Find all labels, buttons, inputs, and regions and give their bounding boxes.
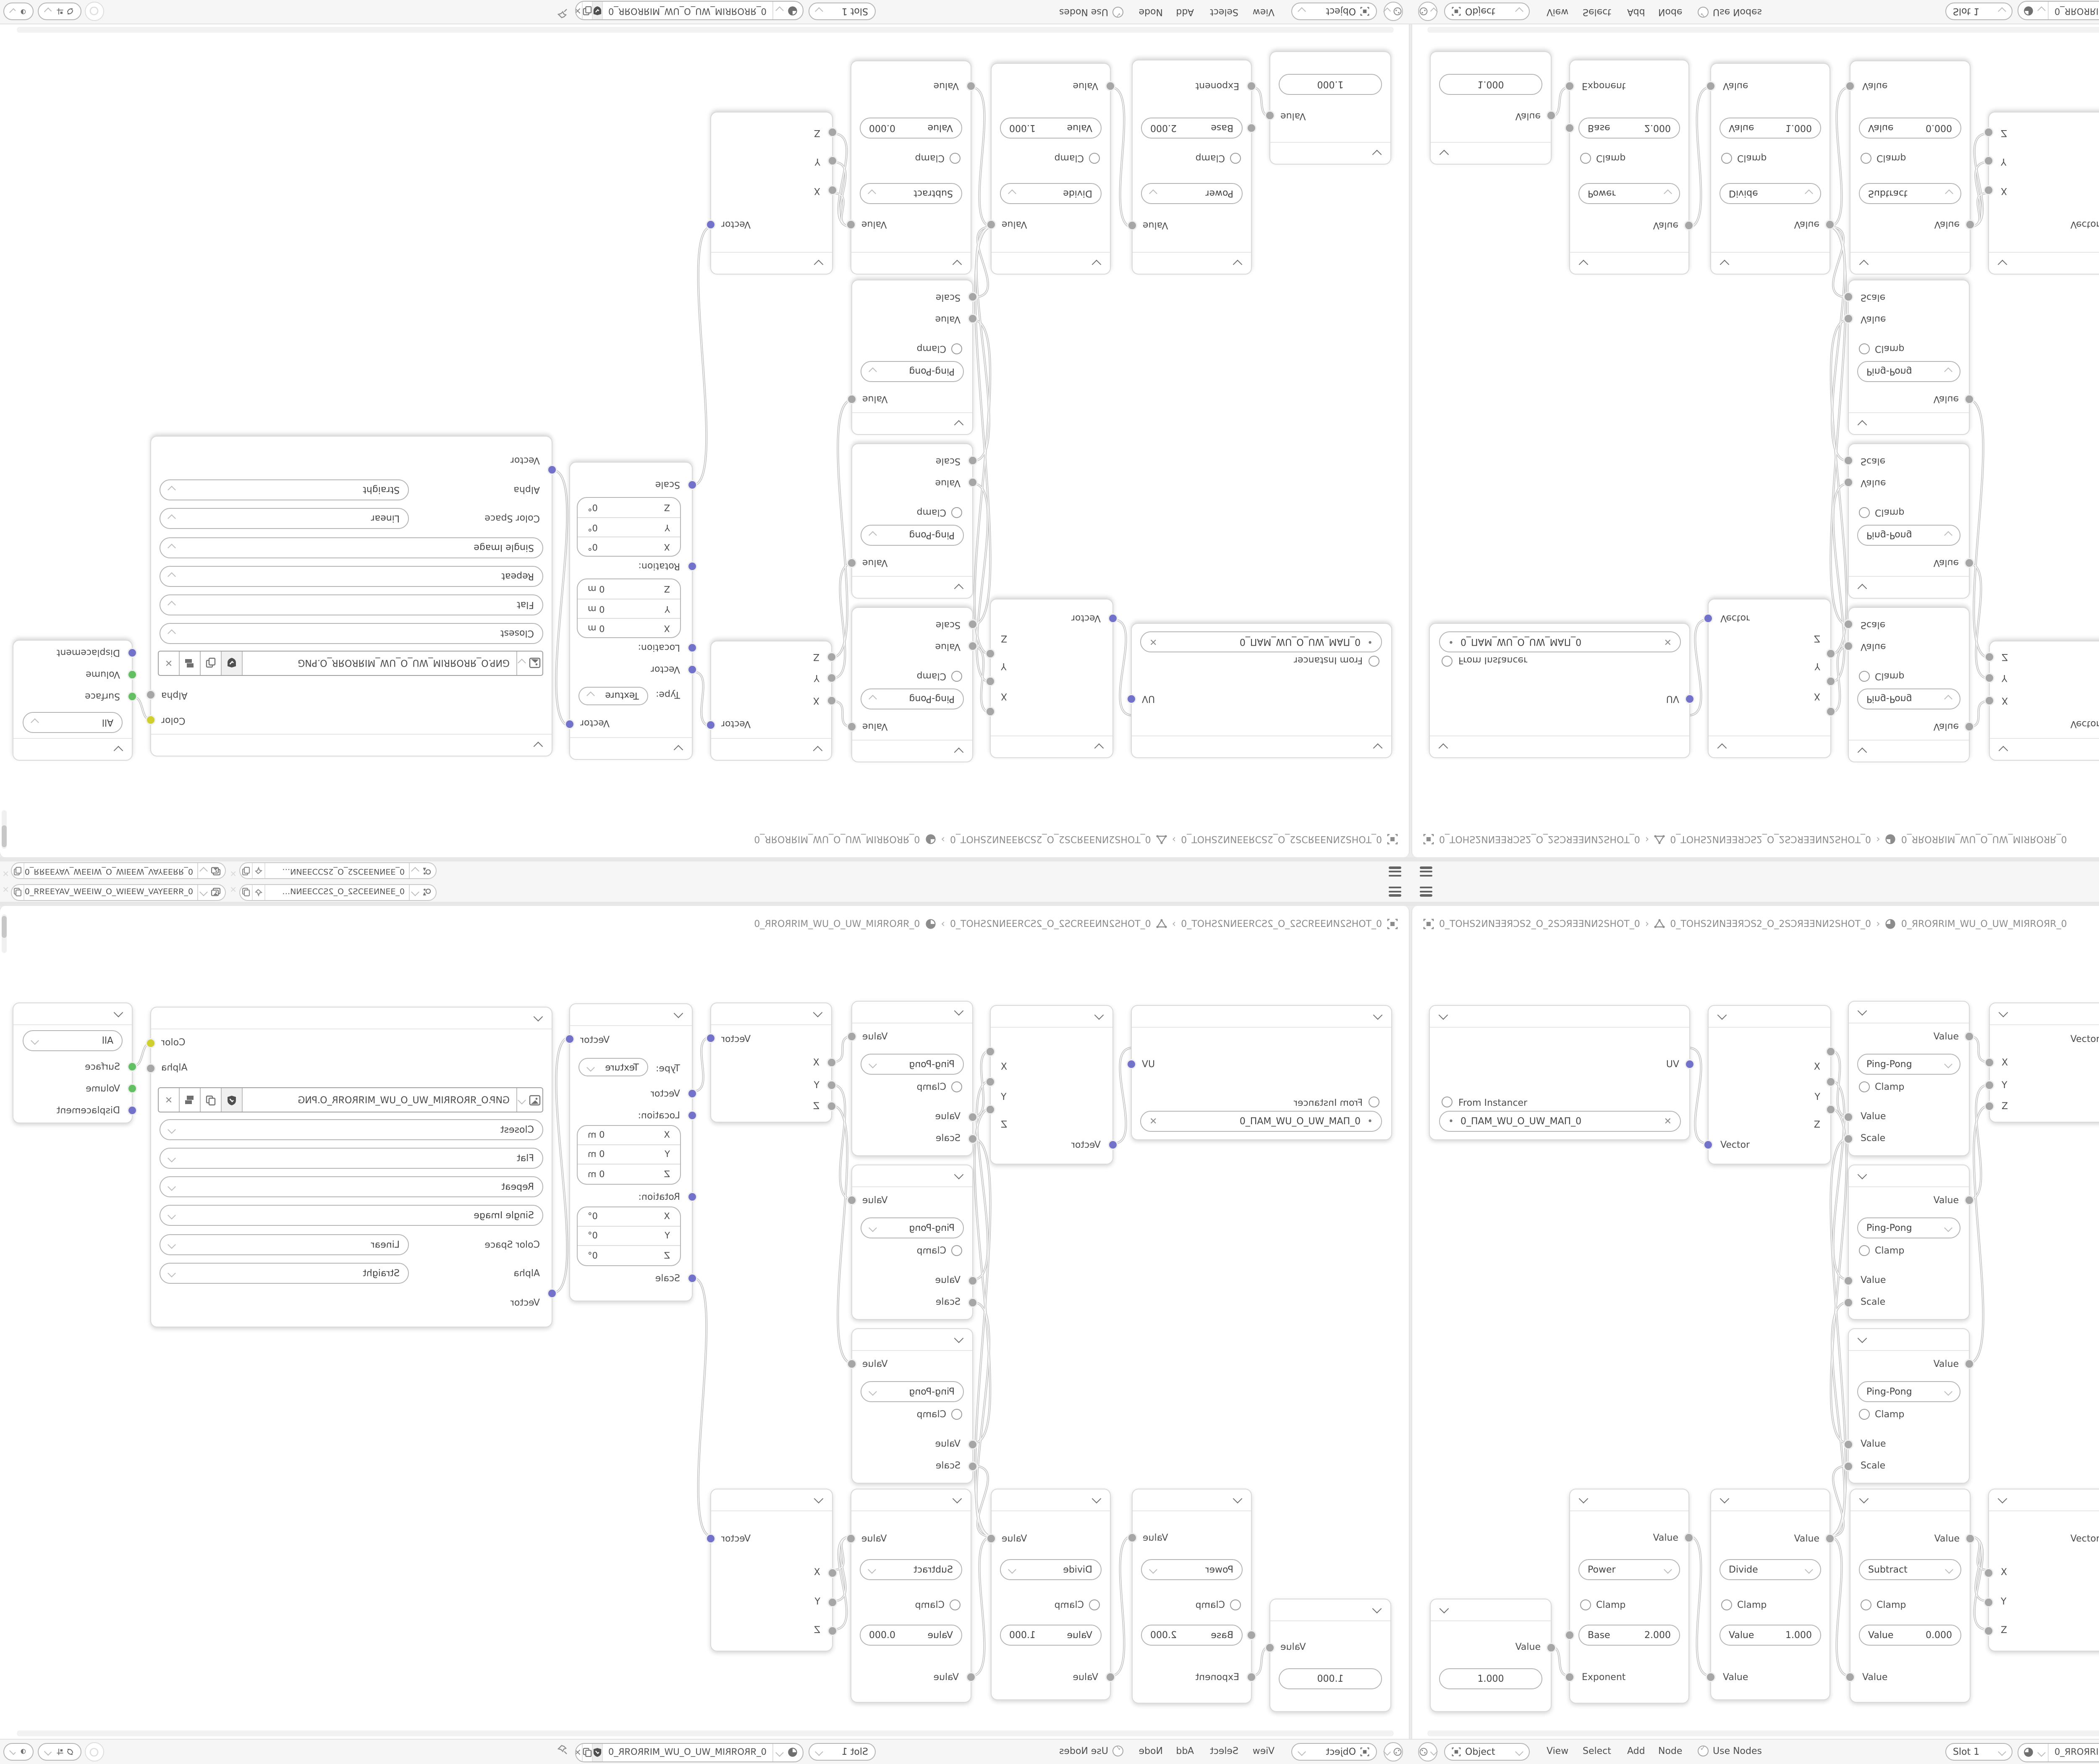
socket-z-input[interactable] [828,653,835,661]
collapse-chevron-icon[interactable] [1579,260,1589,270]
node-header[interactable] [851,1489,971,1511]
node-header[interactable] [1849,1002,1969,1023]
operation-dropdown[interactable]: Ping-Pong [861,1054,964,1075]
collapse-chevron-icon[interactable] [114,746,123,756]
menu-node[interactable]: Node [1658,7,1682,18]
node-math-power[interactable]: Value Power Clamp Base2.000 Exponent [1132,60,1252,275]
clamp-checkbox[interactable] [1859,1081,1870,1092]
collapse-chevron-icon[interactable] [1858,1170,1867,1180]
node-header[interactable] [1989,252,2099,274]
value-field[interactable]: 1.000 [1279,1668,1382,1689]
view-layer-icon[interactable] [197,864,225,879]
socket-base-input[interactable] [1248,124,1255,132]
socket-y-input[interactable] [1986,1081,1993,1089]
node-math-pingpong-z[interactable]: Value Ping-Pong Clamp Value Scale [851,280,973,435]
node-editor-canvas[interactable]: 0_TOHS2ИNƎƎЯƆS2_O_2SƆЯƎƎNИ2SHOT_0 › 0_TO… [0,24,1410,857]
socket-x-output[interactable] [987,1048,994,1055]
node-editor-canvas[interactable]: 0_TOHS2ИNƎƎЯƆS2_O_2SƆЯƎƎNИ2SHOT_0 › 0_TO… [1411,906,2099,1739]
socket-vector-output[interactable] [707,1034,714,1042]
operation-dropdown[interactable]: Ping-Pong [1857,1381,1960,1402]
node-combine-xyz-scale[interactable]: Vector X Y Z [710,1489,833,1651]
collapse-chevron-icon[interactable] [814,260,824,270]
socket-value-output[interactable] [1266,1644,1274,1651]
socket-scale-input[interactable] [688,481,696,489]
node-header[interactable] [852,1165,972,1187]
collapse-chevron-icon[interactable] [1859,260,1869,270]
pin-icon[interactable] [253,885,265,900]
socket-z-output[interactable] [987,1106,994,1113]
node-header[interactable] [1431,1599,1551,1621]
operation-dropdown[interactable]: Divide [1720,1559,1821,1580]
clamp-checkbox[interactable] [1859,343,1870,354]
node-header[interactable] [1270,142,1390,164]
socket-x-input[interactable] [828,697,835,704]
use-nodes-checkbox[interactable]: Use Nodes [1698,1746,1762,1756]
socket-uv-output[interactable] [1686,1060,1693,1068]
socket-scale-input[interactable] [1845,293,1852,301]
uv-map-name[interactable]: 0_ПAM_WU_O_UW_MAП_0 [1460,1116,1664,1127]
node-math-divide[interactable]: Value Divide Clamp Value1.000 Value [991,1489,1111,1700]
operation-dropdown[interactable]: Power [1578,183,1680,204]
overlay-toggle[interactable] [3,3,34,21]
slot-dropdown[interactable]: Slot 1 [1945,1743,2013,1760]
node-combine-xyz-scale[interactable]: Vector X Y Z [710,112,833,275]
node-header[interactable] [13,738,132,760]
socket-value-output[interactable] [848,1033,856,1040]
view-layer-selector[interactable]: 0_ЯЯƎƎYAV_WƎƎIW_O_WIƎƎW_VAYƎƎЯЯ_0 [11,884,226,900]
node-value[interactable]: Value 1.000 [1269,51,1391,165]
node-math-pingpong-y[interactable]: Value Ping-Pong Clamp Value Scale [851,1165,973,1320]
socket-z-input[interactable] [829,128,836,136]
axis-field[interactable]: Z0° [578,1246,680,1265]
node-header[interactable] [1849,1329,1969,1351]
clamp-checkbox[interactable] [1089,153,1100,164]
socket-value-input[interactable] [1846,1673,1854,1681]
socket-value-output[interactable] [1966,395,1973,403]
collapse-chevron-icon[interactable] [954,1006,964,1016]
clamp-checkbox[interactable] [950,1599,961,1610]
node-header[interactable] [1430,1006,1689,1028]
shader-type-dropdown[interactable]: Object [1291,1743,1377,1760]
operation-dropdown[interactable]: Ping-Pong [861,361,964,382]
collapse-chevron-icon[interactable] [1998,1494,2007,1504]
node-header[interactable] [1133,1489,1251,1511]
hamburger-menu-icon[interactable] [1420,866,1432,877]
node-header[interactable] [711,1489,832,1511]
socket-rotation-input[interactable] [688,1193,696,1201]
socket-scale-input[interactable] [969,1463,976,1470]
scene-icon[interactable] [409,885,436,900]
socket-location-input[interactable] [688,644,696,652]
render-preview-button[interactable] [85,2,104,21]
copy-icon[interactable] [582,1743,592,1761]
operation-dropdown[interactable]: Ping-Pong [861,525,964,546]
socket-value-input[interactable] [969,1277,976,1285]
socket-z-input[interactable] [1986,653,1993,661]
collapse-chevron-icon[interactable] [1094,1010,1104,1020]
base-field[interactable]: Base2.000 [1578,1625,1680,1646]
clear-icon[interactable]: ✕ [1149,636,1157,647]
socket-vector-output[interactable] [707,221,714,228]
socket-y-input[interactable] [829,157,836,165]
value-field[interactable]: Value1.000 [1720,118,1821,139]
scene-name[interactable]: 0_ƎƎИNƎƎƆS2_O_2SƆƆƎƎNИ… [265,866,409,876]
socket-location-input[interactable] [688,1112,696,1119]
base-field[interactable]: Base2.000 [1578,118,1680,139]
node-mapping[interactable]: Vector Type: Texture Vector Location: X0… [569,462,693,760]
menu-select[interactable]: Select [1210,7,1238,18]
checkbox-check-icon[interactable] [1112,7,1123,18]
output-target-dropdown[interactable]: All [23,1030,123,1051]
socket-z-input[interactable] [828,1102,835,1110]
collapse-chevron-icon[interactable] [954,1170,964,1180]
socket-y-output[interactable] [987,1078,994,1086]
unpack-icon[interactable] [180,1088,201,1112]
material-name[interactable]: 0_ЯROЯRIM_WU_O_UW_MIЯROЯR_0 [2049,1747,2099,1757]
view-layer-icon[interactable] [197,885,225,900]
node-header[interactable] [1132,735,1391,757]
socket-y-output[interactable] [1827,678,1835,685]
socket-value-output[interactable] [1966,1196,1973,1204]
source-dropdown[interactable]: Single Image [160,537,543,558]
node-header[interactable] [1850,1489,1970,1511]
socket-scale-input[interactable] [969,620,976,628]
collapse-chevron-icon[interactable] [1720,1494,1730,1504]
socket-value-input[interactable] [969,315,976,322]
clear-icon[interactable]: ✕ [1664,636,1672,647]
node-header[interactable] [852,576,972,598]
node-header[interactable] [1709,735,1830,757]
menu-node[interactable]: Node [1658,1746,1682,1756]
menu-node[interactable]: Node [1139,1746,1163,1756]
socket-x-input[interactable] [829,1569,836,1577]
menu-node[interactable]: Node [1139,7,1163,18]
node-header[interactable] [852,1002,972,1023]
socket-value-output[interactable] [848,1196,856,1204]
clamp-checkbox[interactable] [1859,1409,1870,1420]
socket-value-output[interactable] [848,395,856,403]
horizontal-scrollbar[interactable] [17,27,1394,33]
operation-dropdown[interactable]: Ping-Pong [861,1381,964,1402]
node-combine-xyz[interactable]: Vector X Y Z [710,641,832,761]
material-name[interactable]: 0_ЯROЯRIM_WU_O_UW_MIЯROЯR_0 [2049,6,2099,16]
socket-scale-input[interactable] [969,1299,976,1306]
socket-base-input[interactable] [1566,1631,1573,1639]
collapse-chevron-icon[interactable] [954,420,964,430]
fake-user-shield-icon[interactable] [592,1743,602,1761]
value-field[interactable]: 1.000 [1279,74,1382,95]
operation-dropdown[interactable]: Ping-Pong [1857,525,1960,546]
node-header[interactable] [570,1004,692,1026]
socket-volume-input[interactable] [128,1085,136,1092]
unlink-icon[interactable]: ✕ [575,2,582,20]
node-math-pingpong-z[interactable]: Value Ping-Pong Clamp Value Scale [851,1328,973,1484]
socket-volume-input[interactable] [128,671,136,678]
socket-value-output[interactable] [1966,559,1973,567]
socket-value-output[interactable] [1547,1644,1555,1651]
operation-dropdown[interactable]: Power [1141,1559,1243,1580]
operation-dropdown[interactable]: Ping-Pong [861,1217,964,1238]
value-field[interactable]: Value0.000 [860,1625,962,1646]
socket-value-input[interactable] [967,1673,975,1681]
socket-vector-input[interactable] [1704,1141,1712,1149]
node-header[interactable] [1849,740,1969,762]
clamp-checkbox[interactable] [951,507,962,518]
socket-z-output[interactable] [1827,1106,1835,1113]
socket-value-output[interactable] [848,559,856,567]
socket-value-output[interactable] [1128,1534,1136,1542]
collapse-chevron-icon[interactable] [1439,1010,1448,1020]
clamp-checkbox[interactable] [1580,1599,1591,1610]
axis-field[interactable]: Y0° [578,1227,680,1246]
base-field[interactable]: Base2.000 [1141,118,1243,139]
pin-icon[interactable] [557,8,568,19]
socket-y-output[interactable] [987,678,994,685]
socket-value-output[interactable] [987,221,995,228]
clamp-checkbox[interactable] [951,671,962,682]
base-field[interactable]: Base2.000 [1141,1625,1243,1646]
socket-value-input[interactable] [1845,1277,1852,1285]
socket-vector-input[interactable] [1704,615,1712,622]
collapse-chevron-icon[interactable] [1372,150,1382,160]
node-header[interactable] [151,1008,552,1029]
menu-select[interactable]: Select [1210,1746,1238,1756]
socket-displacement-input[interactable] [128,649,136,657]
node-combine-xyz[interactable]: Vector X Y Z [1989,1002,2099,1123]
socket-y-input[interactable] [829,1599,836,1606]
socket-value-input[interactable] [1845,479,1852,486]
clamp-checkbox[interactable] [1721,153,1732,164]
material-icon[interactable] [772,1743,803,1761]
shader-type-dropdown[interactable]: Object [1444,3,1530,21]
axis-field[interactable]: Y0 m [578,1145,680,1165]
image-datablock-field[interactable]: GИP.O_ЯROЯRIM_WU_O_UW_MIЯROЯR_O.PNG ✕ [158,651,543,676]
socket-y-input[interactable] [1985,1599,1992,1606]
material-selector[interactable]: 0_ЯROЯRIM_WU_O_UW_MIЯROЯR_0 ✕ [2018,1743,2099,1762]
socket-z-input[interactable] [1985,128,1992,136]
node-editor-canvas[interactable]: 0_TOHS2ИNƎƎЯƆS2_O_2SƆЯƎƎNИ2SHOT_0 › 0_TO… [1411,24,2099,857]
socket-displacement-input[interactable] [128,1107,136,1114]
horizontal-scrollbar[interactable] [1427,27,2099,33]
uv-map-name-field[interactable]: • 0_ПAM_WU_O_UW_MAП_0 ✕ [1140,631,1382,652]
uv-map-name-field[interactable]: • 0_ПAM_WU_O_UW_MAП_0 ✕ [1140,1111,1382,1132]
image-filename[interactable]: GИP.O_ЯROЯRIM_WU_O_UW_MIЯROЯR_O.PNG [243,1088,516,1112]
unlink-icon[interactable]: ✕ [575,1743,582,1761]
socket-value-input[interactable] [1707,1673,1714,1681]
node-combine-xyz[interactable]: Vector X Y Z [710,1002,832,1123]
socket-alpha-output[interactable] [147,1065,154,1072]
operation-dropdown[interactable]: Subtract [860,183,962,204]
node-math-power[interactable]: Value Power Clamp Base2.000 Exponent [1132,1489,1252,1704]
clamp-checkbox[interactable] [1859,1245,1870,1256]
value-field[interactable]: Value0.000 [860,118,962,139]
collapse-chevron-icon[interactable] [1439,1604,1449,1614]
image-filename[interactable]: GИP.O_ЯROЯRIM_WU_O_UW_MIЯROЯR_O.PNG [243,652,516,675]
collapse-chevron-icon[interactable] [1720,260,1730,270]
socket-value-input[interactable] [1107,82,1114,90]
menu-view[interactable]: View [1547,7,1568,18]
node-header[interactable] [570,737,692,759]
socket-surface-input[interactable] [128,1063,136,1070]
socket-value-output[interactable] [1128,222,1136,229]
copy-icon[interactable] [201,652,222,675]
fake-user-shield-icon[interactable] [592,2,602,20]
menu-add[interactable]: Add [1627,7,1645,18]
new-copy-icon[interactable] [12,885,24,900]
new-copy-icon[interactable] [240,885,253,900]
output-target-dropdown[interactable]: All [23,712,123,733]
socket-value-output[interactable] [1547,112,1555,119]
node-math-pingpong-x[interactable]: Value Ping-Pong Clamp Value Scale [851,607,973,762]
from-instancer-checkbox[interactable] [1369,656,1379,667]
socket-x-input[interactable] [1985,1569,1992,1577]
socket-value-output[interactable] [1266,112,1274,119]
clamp-checkbox[interactable] [951,343,962,354]
socket-value-output[interactable] [847,221,855,228]
socket-surface-input[interactable] [128,693,136,700]
node-header[interactable] [1133,252,1251,274]
node-header[interactable] [852,1329,972,1351]
clamp-checkbox[interactable] [950,153,961,164]
socket-x-input[interactable] [1985,186,1992,194]
collapse-chevron-icon[interactable] [954,584,964,594]
socket-x-output[interactable] [1827,1048,1835,1055]
render-preview-button[interactable] [85,1742,104,1761]
collapse-chevron-icon[interactable] [1373,743,1383,753]
material-selector[interactable]: 0_ЯROЯRIM_WU_O_UW_MIЯROЯR_0 ✕ [575,1,803,21]
socket-vector-output[interactable] [707,721,714,729]
material-name[interactable]: 0_ЯROЯRIM_WU_O_UW_MIЯROЯR_0 [602,1747,772,1757]
hamburger-menu-icon[interactable] [1389,866,1401,877]
extension-dropdown[interactable]: Repeat [160,1176,543,1197]
material-icon[interactable] [2018,1743,2049,1761]
alpha-mode-dropdown[interactable]: Straight [160,479,409,500]
value-field[interactable]: 1.000 [1439,74,1542,95]
socket-y-input[interactable] [1985,157,1992,165]
socket-y-input[interactable] [1986,674,1993,682]
color-space-dropdown[interactable]: Linear [160,508,409,529]
socket-vector-input[interactable] [1109,615,1117,622]
socket-value-output[interactable] [1966,1535,1974,1542]
node-material-output[interactable]: All Surface Volume Displacement [13,1002,133,1123]
collapse-chevron-icon[interactable] [114,1008,123,1018]
use-nodes-checkbox[interactable]: Use Nodes [1059,1746,1123,1756]
interpolation-dropdown[interactable]: Closest [160,623,543,644]
menu-add[interactable]: Add [1176,7,1194,18]
node-combine-xyz[interactable]: Vector X Y Z [1989,641,2099,761]
menu-select[interactable]: Select [1583,7,1611,18]
overlay-toggle[interactable] [3,1743,34,1760]
clear-icon[interactable]: ✕ [159,652,180,675]
node-header[interactable] [1709,1006,1830,1028]
rotation-xyz-fields[interactable]: X0° Y0° Z0° [577,497,681,557]
socket-vector-input[interactable] [548,1290,556,1297]
socket-value-input[interactable] [1107,1673,1114,1681]
operation-dropdown[interactable]: Ping-Pong [1857,688,1960,709]
socket-x-output[interactable] [1827,708,1835,715]
socket-vector-output[interactable] [566,1035,573,1043]
view-layer-selector[interactable]: 0_ЯЯƎƎYAV_WƎƎIW_O_WIƎƎW_VAYƎƎЯЯ_0 [11,863,226,879]
collapse-chevron-icon[interactable] [1858,584,1867,594]
socket-value-output[interactable] [1826,221,1834,228]
alpha-mode-dropdown[interactable]: Straight [160,1263,409,1284]
socket-vector-input[interactable] [688,666,696,673]
axis-field[interactable]: X0° [578,537,680,556]
socket-vector-output[interactable] [566,720,573,728]
checkbox-check-icon[interactable] [1112,1746,1123,1756]
node-header[interactable] [1849,1165,1969,1187]
node-header[interactable] [851,252,971,274]
socket-value-input[interactable] [1707,82,1714,90]
socket-value-input[interactable] [969,1441,976,1448]
node-header[interactable] [1849,412,1969,434]
material-selector[interactable]: 0_ЯROЯRIM_WU_O_UW_MIЯROЯR_0 ✕ [575,1743,803,1762]
new-copy-icon[interactable] [12,864,24,879]
menu-add[interactable]: Add [1627,1746,1645,1756]
socket-uv-output[interactable] [1686,695,1693,703]
node-value[interactable]: Value 1.000 [1430,51,1552,165]
socket-x-input[interactable] [829,186,836,194]
location-xyz-fields[interactable]: X0 m Y0 m Z0 m [577,578,681,638]
node-header[interactable] [991,1006,1112,1028]
clamp-checkbox[interactable] [951,1409,962,1420]
from-instancer-checkbox[interactable] [1369,1097,1379,1107]
socket-exponent-input[interactable] [1566,1673,1573,1681]
socket-value-output[interactable] [1826,1535,1834,1542]
uv-map-name-field[interactable]: • 0_ПAM_WU_O_UW_MAП_0 ✕ [1439,1111,1681,1132]
clamp-checkbox[interactable] [1580,153,1591,164]
clamp-checkbox[interactable] [1861,1599,1871,1610]
fake-user-shield-icon[interactable] [222,652,243,675]
collapse-chevron-icon[interactable] [1858,1006,1867,1016]
socket-vector-input[interactable] [548,466,556,474]
view-layer-unlink-icon[interactable]: ✕ [2,886,9,895]
snapping-controls[interactable] [38,3,81,21]
scene-unlink-icon[interactable]: ✕ [230,886,237,895]
socket-scale-input[interactable] [969,1135,976,1143]
socket-value-input[interactable] [1845,642,1852,650]
shader-type-dropdown[interactable]: Object [1444,1743,1530,1760]
socket-scale-input[interactable] [969,293,976,301]
collapse-chevron-icon[interactable] [813,746,823,756]
node-math-divide[interactable]: Value Divide Clamp Value1.000 Value [1710,1489,1830,1700]
clamp-checkbox[interactable] [1230,1599,1241,1610]
view-layer-name[interactable]: 0_ЯЯƎƎYAV_WƎƎIW_O_WIƎƎW_VAYƎƎЯЯ_0 [24,866,197,876]
material-icon[interactable] [772,2,803,20]
unpack-icon[interactable] [180,652,201,675]
socket-x-input[interactable] [1986,1059,1993,1066]
value-field[interactable]: Value1.000 [1000,1625,1102,1646]
value-field[interactable]: Value0.000 [1859,118,1961,139]
socket-rotation-input[interactable] [688,563,696,570]
value-field[interactable]: 1.000 [1439,1668,1542,1689]
slot-dropdown[interactable]: Slot 1 [809,1743,876,1760]
collapse-chevron-icon[interactable] [674,745,683,755]
menu-view[interactable]: View [1547,1746,1568,1756]
node-header[interactable] [1990,1003,2099,1025]
socket-x-output[interactable] [987,708,994,715]
fake-user-shield-icon[interactable] [222,1088,243,1112]
node-math-divide[interactable]: Value Divide Clamp Value1.000 Value [991,63,1111,275]
hamburger-menu-icon[interactable] [1420,887,1432,897]
image-icon[interactable] [516,652,542,675]
operation-dropdown[interactable]: Subtract [860,1559,962,1580]
socket-scale-input[interactable] [688,1275,696,1282]
mapping-type-dropdown[interactable]: Texture [578,1058,648,1076]
operation-dropdown[interactable]: Ping-Pong [1857,1217,1960,1238]
node-uv-map[interactable]: UV From Instancer • 0_ПAM_WU_O_UW_MAП_0 … [1131,1005,1392,1140]
from-instancer-checkbox[interactable] [1442,656,1453,667]
